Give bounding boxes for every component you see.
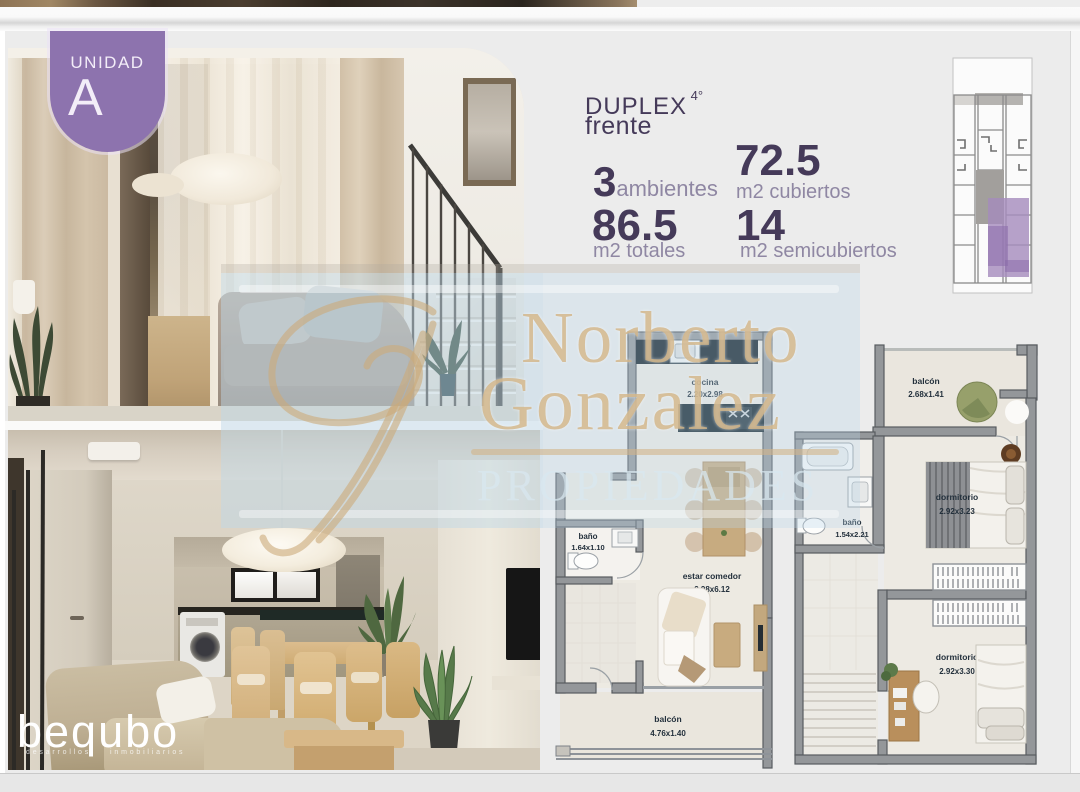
svg-text:balcón: balcón	[912, 376, 939, 386]
svg-text:1.64x1.10: 1.64x1.10	[571, 543, 604, 552]
svg-text:1.54x2.21: 1.54x2.21	[835, 530, 868, 539]
svg-text:dormitorio: dormitorio	[936, 652, 979, 662]
svg-text:dormitorio: dormitorio	[936, 492, 979, 502]
svg-text:baño: baño	[578, 532, 597, 541]
svg-text:2.92x3.23: 2.92x3.23	[939, 507, 975, 516]
svg-text:2.68x1.41: 2.68x1.41	[908, 390, 944, 399]
svg-text:estar comedor: estar comedor	[683, 571, 742, 581]
svg-text:4.76x1.40: 4.76x1.40	[650, 729, 686, 738]
svg-text:balcón: balcón	[654, 714, 681, 724]
svg-text:2.92x3.30: 2.92x3.30	[939, 667, 975, 676]
